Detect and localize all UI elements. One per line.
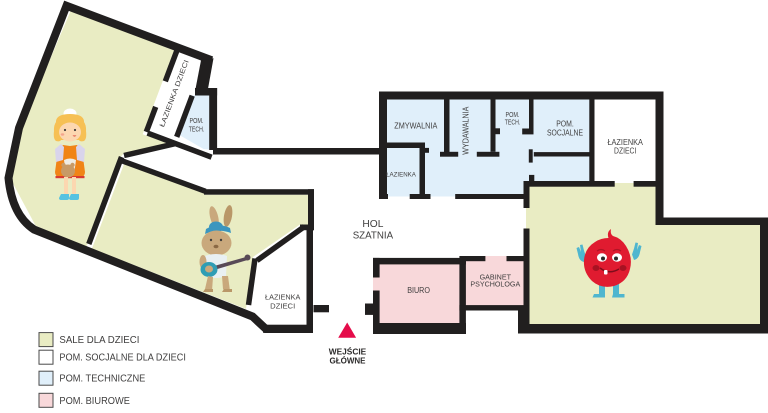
svg-text:ŁAZIENKA: ŁAZIENKA	[265, 293, 300, 302]
svg-text:DZIECI: DZIECI	[614, 147, 636, 156]
svg-text:PSYCHOLOGA: PSYCHOLOGA	[470, 280, 520, 289]
svg-text:GŁÓWNE: GŁÓWNE	[330, 355, 366, 366]
svg-text:HOL: HOL	[362, 219, 383, 230]
svg-text:WYDAWALNIA: WYDAWALNIA	[462, 106, 471, 155]
svg-text:SZATNIA: SZATNIA	[353, 231, 394, 242]
svg-text:DZIECI: DZIECI	[270, 302, 295, 311]
svg-text:TECH.: TECH.	[189, 125, 205, 134]
svg-text:SALE DLA DZIECI: SALE DLA DZIECI	[59, 335, 139, 346]
svg-text:POM. TECHNICZNE: POM. TECHNICZNE	[59, 374, 145, 385]
svg-text:ZMYWALNIA: ZMYWALNIA	[394, 122, 438, 131]
svg-text:TECH.: TECH.	[505, 117, 521, 126]
svg-text:SOCJALNE: SOCJALNE	[547, 128, 583, 137]
svg-text:BIURO: BIURO	[407, 286, 430, 295]
svg-text:POM. SOCJALNE DLA DZIECI: POM. SOCJALNE DLA DZIECI	[59, 353, 185, 364]
svg-text:POM.: POM.	[190, 116, 204, 125]
svg-text:ŁAZIENKA: ŁAZIENKA	[386, 171, 416, 178]
svg-text:POM. BIUROWE: POM. BIUROWE	[59, 396, 130, 407]
